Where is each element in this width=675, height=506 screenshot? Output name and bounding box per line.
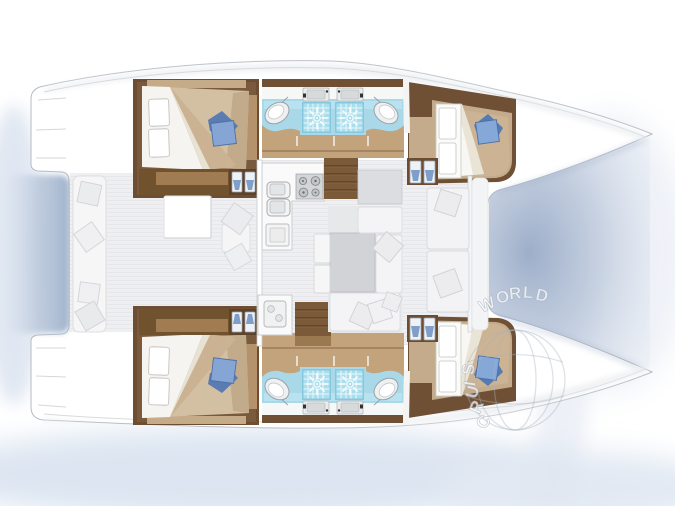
svg-text:S: S (459, 363, 479, 376)
svg-text:L: L (522, 283, 533, 303)
svg-text:R: R (508, 283, 522, 303)
